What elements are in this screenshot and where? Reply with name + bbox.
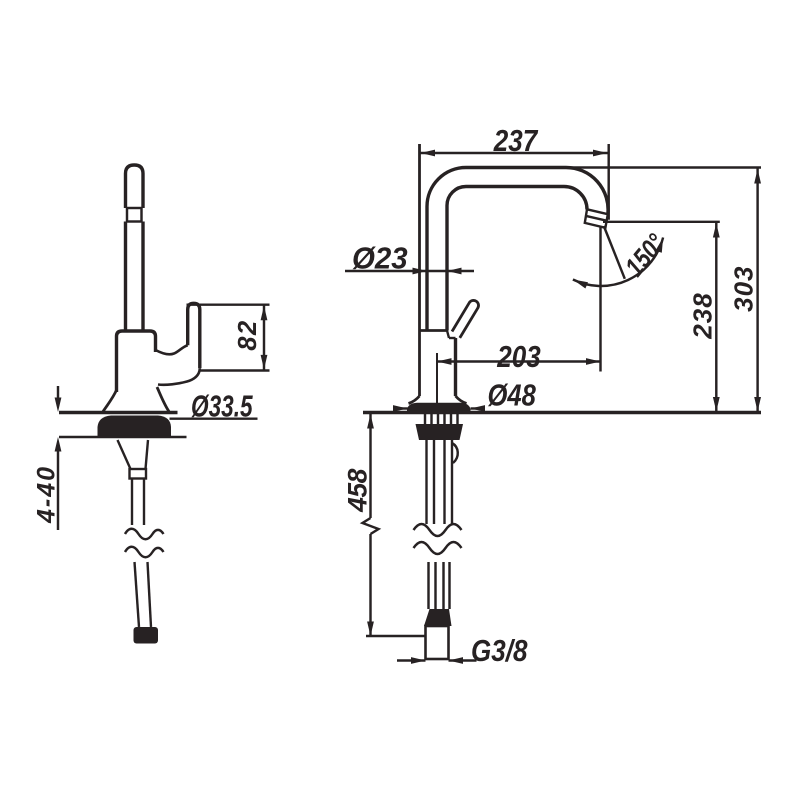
svg-text:82: 82	[234, 319, 262, 350]
svg-text:150°: 150°	[620, 229, 672, 283]
svg-text:Ø48: Ø48	[488, 378, 537, 413]
svg-text:303: 303	[729, 266, 759, 312]
svg-text:238: 238	[688, 292, 718, 339]
svg-text:Ø23: Ø23	[352, 242, 408, 276]
svg-text:203: 203	[496, 340, 540, 375]
svg-text:Ø33.5: Ø33.5	[191, 388, 253, 423]
svg-text:G3/8: G3/8	[471, 634, 527, 669]
svg-text:458: 458	[343, 468, 373, 512]
svg-text:237: 237	[493, 124, 539, 159]
svg-text:4-40: 4-40	[33, 465, 61, 524]
